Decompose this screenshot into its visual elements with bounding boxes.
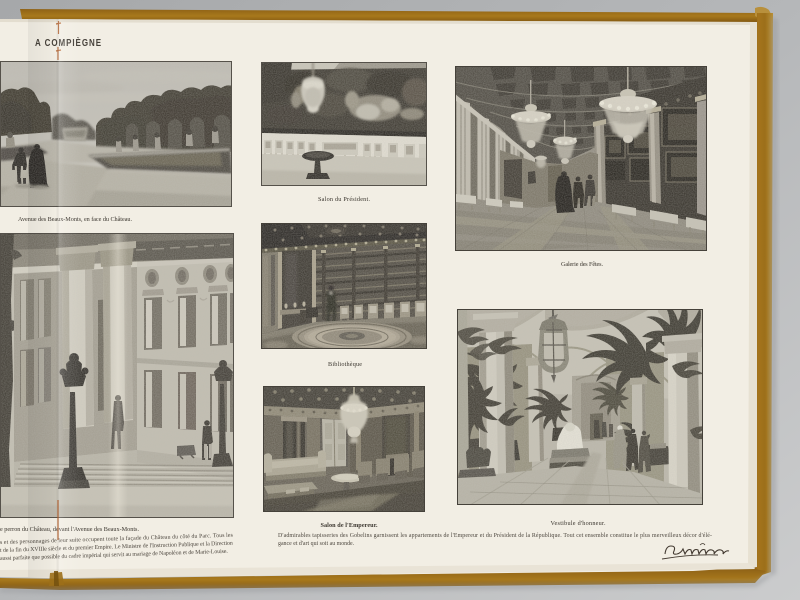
svg-text:D'admirables tapisseries des G: D'admirables tapisseries des Gobelins ga… xyxy=(278,533,712,539)
svg-text:Bibliothèque: Bibliothèque xyxy=(328,361,362,368)
svg-text:Galerie des Fêtes.: Galerie des Fêtes. xyxy=(561,261,603,268)
svg-text:Salon de l'Empereur.: Salon de l'Empereur. xyxy=(321,522,378,529)
svg-text:Vestibule d'honneur.: Vestibule d'honneur. xyxy=(551,520,606,527)
svg-text:gance et d'art qui soit au mon: gance et d'art qui soit au monde. xyxy=(278,541,355,547)
svg-text:Salon du Président.: Salon du Président. xyxy=(318,196,370,203)
